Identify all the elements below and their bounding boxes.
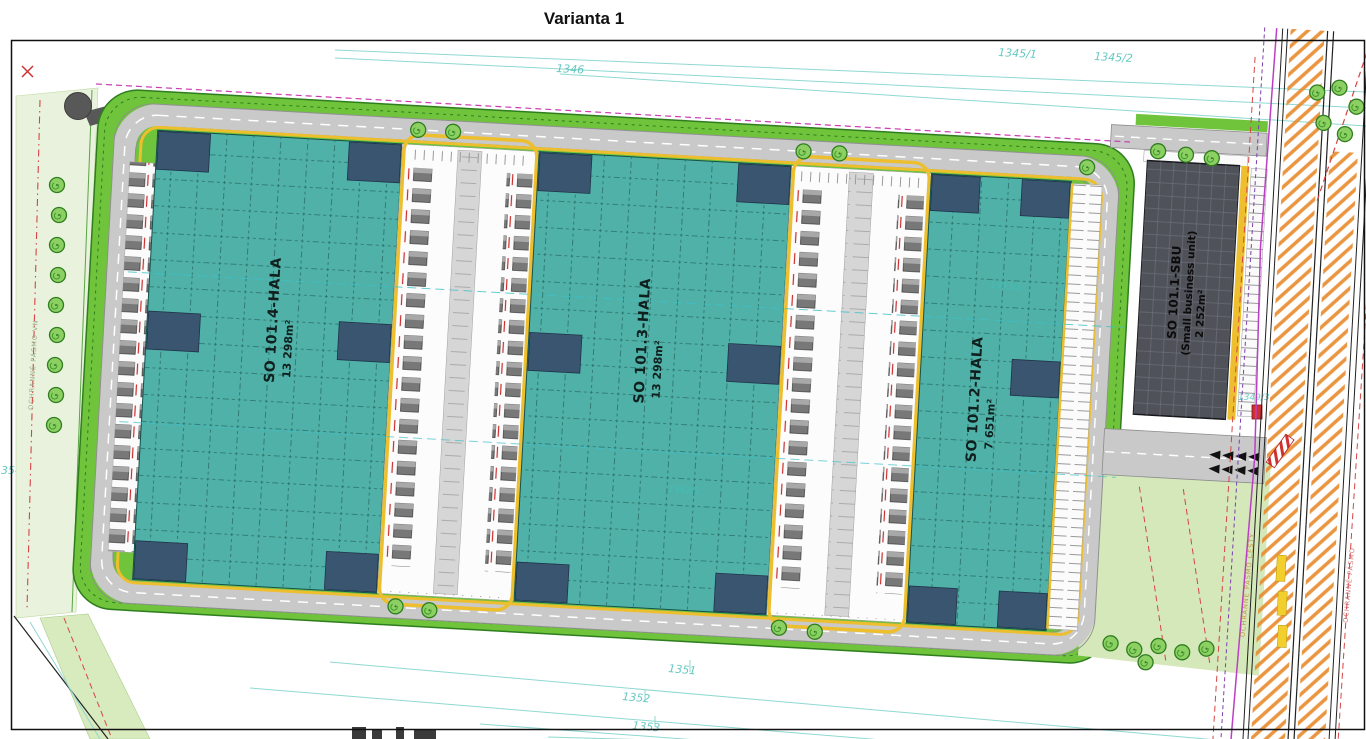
parcel-label-1345-2: 1345/2 — [1094, 50, 1133, 65]
site-area: SO 101.4-HALA 13 298m² SO 1 — [71, 56, 1290, 676]
parcel-label-1352: 1352 — [622, 690, 651, 705]
hall-101-4: SO 101.4-HALA 13 298m² — [133, 130, 403, 593]
hall-101-3: SO 101.3-HALA 13 298m² — [514, 152, 792, 615]
parcel-label-1353: 1353 — [632, 719, 661, 734]
hall-101-2: SO 101.2-HALA 7 651m² — [906, 174, 1071, 631]
drawing-title: Varianta 1 — [544, 9, 624, 28]
site-plan-sheet: 1346 1345/1 1345/2 1351 1352 1353 1354 O… — [0, 0, 1366, 739]
parcel-label-1342-1: 1342/1 — [668, 485, 700, 497]
site-plan-drawing: 1346 1345/1 1345/2 1351 1352 1353 1354 O… — [0, 0, 1366, 739]
truck-court-2 — [766, 156, 932, 633]
parcel-label-1345-1: 1345/1 — [998, 46, 1037, 61]
parcel-label-1343-1: 1343/1 — [990, 281, 1022, 293]
parcel-label-1349-3: 1349/3 — [1238, 393, 1270, 403]
sbu-building: SO 101.1-SBU (Small business unit) 2 252… — [1133, 161, 1267, 421]
corner-x-mark — [22, 66, 33, 77]
truck-court-1 — [377, 134, 540, 611]
parcel-label-1346: 1346 — [556, 62, 585, 76]
parcel-label-1351: 1351 — [668, 662, 697, 677]
bottom-left-green-wedge — [14, 614, 150, 739]
right-easement-label: OCHRANNÉ PÁSMO — [1341, 547, 1357, 623]
